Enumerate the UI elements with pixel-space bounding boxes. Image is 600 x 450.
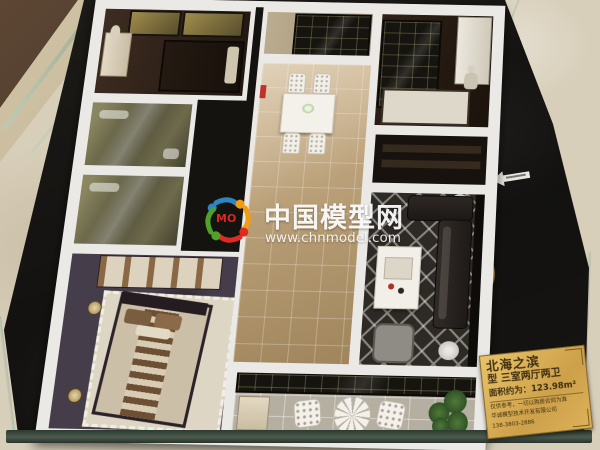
closet-shelf <box>382 144 481 154</box>
table-item <box>388 283 394 289</box>
sofa <box>432 219 472 329</box>
balcony-chair <box>293 398 322 429</box>
dresser <box>100 32 133 77</box>
room-bathroom-glass <box>79 98 198 172</box>
red-wall-accent <box>259 85 266 98</box>
room-bedroom-top-left <box>89 4 256 101</box>
bedside-lamp <box>67 388 83 403</box>
figurine-body <box>464 72 478 89</box>
dining-chair <box>287 73 306 94</box>
dining-chair <box>282 133 302 154</box>
apartment-scale-model <box>34 0 505 450</box>
window-pane <box>181 11 245 38</box>
room-living-room <box>353 187 490 372</box>
figurine-head <box>467 65 475 73</box>
bed <box>158 40 245 93</box>
photo-architectural-model: MO 中国模型网 www.chnmodel.com 北海之滨 型 三室两厅两卫 … <box>0 0 600 450</box>
room-entry-hall <box>259 7 379 60</box>
coffee-table <box>373 246 422 310</box>
bathtub <box>99 110 129 119</box>
flower-centerpiece <box>302 104 315 114</box>
balcony-cabinet <box>236 396 271 431</box>
armchair <box>372 323 416 363</box>
statue-figurine <box>463 65 480 89</box>
kitchen-counter <box>89 183 120 192</box>
model-outer-walls <box>34 0 505 450</box>
toilet <box>162 148 179 159</box>
pillow <box>123 308 152 326</box>
closet-shelf <box>381 160 480 170</box>
sofa-chaise <box>407 195 474 222</box>
room-corridor-closet <box>367 130 493 190</box>
balcony-chair <box>375 399 407 431</box>
room-bedroom-top-right <box>369 10 498 133</box>
dining-chair <box>307 133 326 154</box>
room-kitchen-glass <box>68 170 190 251</box>
potted-plant-silver <box>438 341 460 360</box>
entry-glass-door <box>291 13 372 60</box>
dining-table <box>280 93 336 134</box>
dining-chair <box>312 73 331 94</box>
room-dining-hall <box>227 58 376 369</box>
table-item <box>398 288 404 294</box>
window-pane <box>127 10 182 36</box>
spec-plaque: 北海之滨 型 三室两厅两卫 面积约为：123.98m² 仅供参考，一切以购房合同… <box>479 345 593 440</box>
wardrobe <box>96 255 223 290</box>
room-master-bedroom <box>42 248 244 437</box>
serving-tray <box>383 257 413 280</box>
bed <box>380 88 470 125</box>
